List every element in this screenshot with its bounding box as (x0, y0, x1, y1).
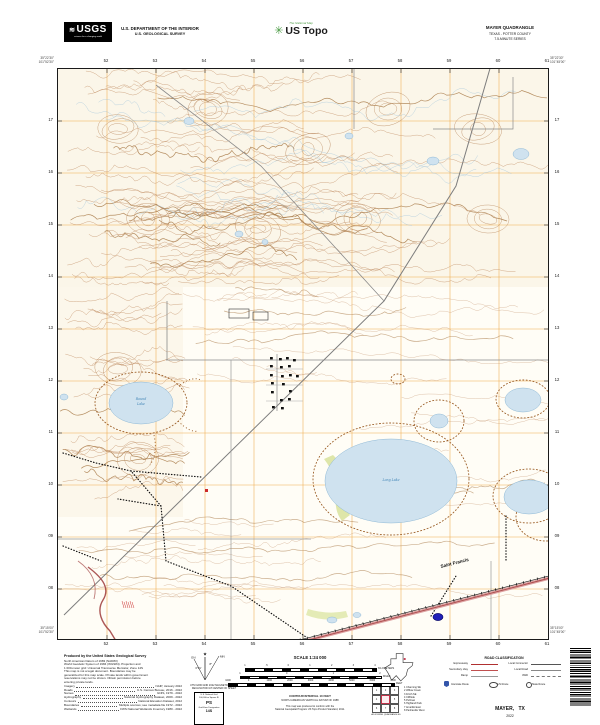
department-heading: U.S. DEPARTMENT OF THE INTERIOR U.S. GEO… (112, 26, 208, 37)
fourwd-line-sample (531, 676, 561, 677)
grid-label-bottom: 60 (490, 641, 506, 646)
quadrangle-title-block: MAYER QUADRANGLE TEXAS - POTTER COUNTY 7… (440, 25, 580, 41)
conform-line-2: National Geospatial Program US Topo Prod… (230, 708, 390, 711)
adjoining-name: 8 Panhandle West (404, 709, 444, 712)
grid-label-right: 13 (550, 325, 564, 330)
vertical-datum: NORTH AMERICAN VERTICAL DATUM OF 1988 (230, 699, 390, 702)
grid-label-left: 13 (39, 325, 53, 330)
grid-label-left: 08 (39, 585, 53, 590)
declination-caption-2: DECLINATION AT CENTER OF SHEET (170, 687, 258, 690)
ramp-line-sample (471, 676, 498, 677)
gn-angle: 0°21' (196, 666, 202, 670)
adj-cell-6: 6 (372, 704, 381, 713)
state-route-label: State Route (532, 683, 545, 686)
road-class-local-connector: Local Connector (500, 662, 528, 665)
grid-label-left: 09 (39, 533, 53, 538)
adj-cell-5: 5 (390, 695, 399, 704)
usgs-wave-icon: ≋ (69, 27, 75, 34)
grid-label-bottom: 59 (441, 641, 457, 646)
grid-label-bottom: 61 (539, 641, 555, 646)
grid-label-top: 55 (245, 58, 261, 63)
grid-label-left: 10 (39, 481, 53, 486)
scale-bar (245, 668, 377, 672)
scale-tick: 0 (281, 672, 293, 675)
corner-sw-lon: 101°52'30" (16, 631, 54, 635)
scale-unit: FEET (396, 682, 426, 685)
grid-label-top: 61 (539, 58, 555, 63)
barcode (570, 648, 591, 706)
usng-box: U.S. National Grid 100,000-m Square ID P… (194, 692, 224, 725)
corner-coord-ne: 35°22'30" 101°45'00" (550, 57, 588, 65)
local-connector-line-sample (531, 664, 561, 665)
credit-row: WetlandsFWS National Wetlands Inventory … (64, 708, 182, 712)
usgs-logo: ≋USGS science for a changing world (64, 22, 112, 42)
lake-nw-label-1: Round (135, 397, 146, 401)
grid-label-bottom: 56 (294, 641, 310, 646)
grid-label-right: 11 (550, 429, 564, 434)
magnetic-north-label: MN (220, 655, 225, 659)
grid-label-top: 60 (490, 58, 506, 63)
interstate-route-label: Interstate Route (451, 683, 469, 686)
quad-title: MAYER QUADRANGLE (440, 25, 580, 32)
lake-center-label: Long Lake (382, 478, 400, 482)
scale-tick: 6000 (366, 679, 378, 682)
grid-label-bottom: 53 (147, 641, 163, 646)
production-credits: Produced by the United States Geological… (64, 654, 182, 712)
adjoining-names: 1 Channing SE2 Willow Creek3 Fritch SE4 … (404, 686, 444, 712)
datum-notes: North American Datum of 1983 (NAD83)Worl… (64, 660, 182, 685)
adj-cell-2: 2 (381, 686, 390, 695)
grid-label-right: 08 (550, 585, 564, 590)
scale-title: SCALE 1:24 000 (250, 655, 370, 660)
quad-location-marker (404, 658, 406, 660)
usgs-tagline: science for a changing world (74, 36, 102, 38)
produced-by: Produced by the United States Geological… (64, 654, 182, 658)
road-class-title: ROAD CLASSIFICATION (444, 656, 564, 660)
grid-label-top: 59 (441, 58, 457, 63)
true-north-star: ★ (203, 652, 208, 657)
adj-cell-8: 8 (390, 704, 399, 713)
road-class-expressway: Expressway (441, 662, 468, 665)
usng-square-id: PS (195, 700, 223, 706)
scale-tick: 1000 (222, 679, 234, 682)
grid-label-right: 15 (550, 221, 564, 226)
grid-label-left: 15 (39, 221, 53, 226)
corner-nw-lon: 101°52'30" (16, 61, 54, 65)
grid-label-right: 09 (550, 533, 564, 538)
corner-coord-se: 35°15'00" 101°45'00" (550, 627, 588, 635)
adjoining-quads-grid: 1 2 3 4 5 6 7 8 (372, 686, 399, 713)
dept-line2: U.S. GEOLOGICAL SURVEY (112, 32, 208, 37)
scale-tick: 1 (234, 672, 246, 675)
ustopo-logo: The National Map ✳ US Topo (258, 22, 344, 37)
grid-label-left: 17 (39, 117, 53, 122)
grid-label-top: 53 (147, 58, 163, 63)
road-class-secondary: Secondary Hwy (441, 668, 468, 671)
expressway-line-sample (471, 664, 498, 666)
map-label-layer: Saint Francis Round Lake Long Lake (58, 69, 548, 639)
grid-label-left: 11 (39, 429, 53, 434)
corner-coord-nw: 35°22'30" 101°52'30" (16, 57, 54, 65)
scale-tick: 0 (243, 679, 255, 682)
adj-cell-1: 1 (372, 686, 381, 695)
national-map-pinwheel-icon: ✳ (274, 25, 283, 37)
sheet-title: MAYER, TX (465, 706, 555, 712)
road-class-ramp: Ramp (441, 674, 468, 677)
scale-tick: 4000 (325, 679, 337, 682)
secondary-hwy-line-sample (471, 670, 498, 671)
data-source-credits: ImageryNAIP, January 2022RoadsU.S. Censu… (64, 685, 182, 712)
adj-cell-7: 7 (381, 704, 390, 713)
quad-subtitle2: 7.5-MINUTE SERIES (440, 37, 580, 42)
scale-tick: 1 (304, 664, 316, 667)
scale-unit: KILOMETERS (378, 667, 408, 670)
grid-label-right: 16 (550, 169, 564, 174)
ustopo-brand: US Topo (285, 26, 327, 38)
mn-angle: 8° (210, 662, 212, 666)
lake-nw-label-2: Lake (136, 402, 145, 406)
scale-bar (228, 683, 395, 687)
grid-label-left: 14 (39, 273, 53, 278)
us-route-label: US Route (498, 683, 509, 686)
scale-tick: 3 (347, 664, 359, 667)
adj-cell-4: 4 (372, 695, 381, 704)
grid-label-left: 16 (39, 169, 53, 174)
grid-label-left: 12 (39, 377, 53, 382)
scale-tick: 5000 (346, 679, 358, 682)
grid-label-top: 57 (343, 58, 359, 63)
corner-coord-sw: 35°15'00" 101°52'30" (16, 627, 54, 635)
grid-north-label: GN (191, 656, 196, 660)
grid-label-right: 17 (550, 117, 564, 122)
usng-square-id-label: 100,000-m Square ID (195, 697, 223, 700)
usng-gzd: 14S (195, 709, 223, 713)
road-class-local-road: Local Road (500, 668, 528, 671)
corner-se-lon: 101°45'00" (550, 631, 588, 635)
scale-tick: 0 (282, 664, 294, 667)
usgs-logo-label: USGS (77, 24, 107, 35)
grid-label-top: 54 (196, 58, 212, 63)
grid-label-right: 10 (550, 481, 564, 486)
scale-tick: 2 (326, 664, 338, 667)
sheet-year: 2022 (465, 714, 555, 718)
adj-cell-3: 3 (390, 686, 399, 695)
grid-label-top: 58 (392, 58, 408, 63)
interstate-shield-icon (444, 681, 449, 687)
map-area: Saint Francis Round Lake Long Lake (57, 68, 549, 640)
grid-label-top: 56 (294, 58, 310, 63)
grid-label-bottom: 54 (196, 641, 212, 646)
contour-interval: CONTOUR INTERVAL 10 FEET (230, 694, 390, 698)
usgs-topo-sheet: ≋USGS science for a changing world U.S. … (0, 0, 600, 725)
scale-tick: .5 (261, 664, 273, 667)
adjoining-caption: ADJOINING QUADRANGLES (358, 714, 414, 716)
grid-label-top: 52 (98, 58, 114, 63)
scale-tick: 3000 (305, 679, 317, 682)
road-class-4wd: 4WD (500, 674, 528, 677)
scale-unit: MILES (383, 675, 413, 678)
usgs-logo-text: ≋USGS (69, 25, 107, 35)
adj-cell-center (381, 695, 390, 704)
scale-tick: 1000 (263, 679, 275, 682)
corner-ne-lon: 101°45'00" (550, 61, 588, 65)
scale-tick: 2000 (284, 679, 296, 682)
grid-label-bottom: 55 (245, 641, 261, 646)
railroad-town-label: Saint Francis (440, 557, 470, 569)
grid-label-bottom: 57 (343, 641, 359, 646)
grid-label-right: 14 (550, 273, 564, 278)
grid-label-bottom: 58 (392, 641, 408, 646)
scale-tick: 1 (327, 672, 339, 675)
scale-tick: 1 (239, 664, 251, 667)
grid-label-right: 12 (550, 377, 564, 382)
local-road-line-sample (531, 670, 561, 671)
grid-label-bottom: 52 (98, 641, 114, 646)
us-route-icon (489, 682, 498, 688)
